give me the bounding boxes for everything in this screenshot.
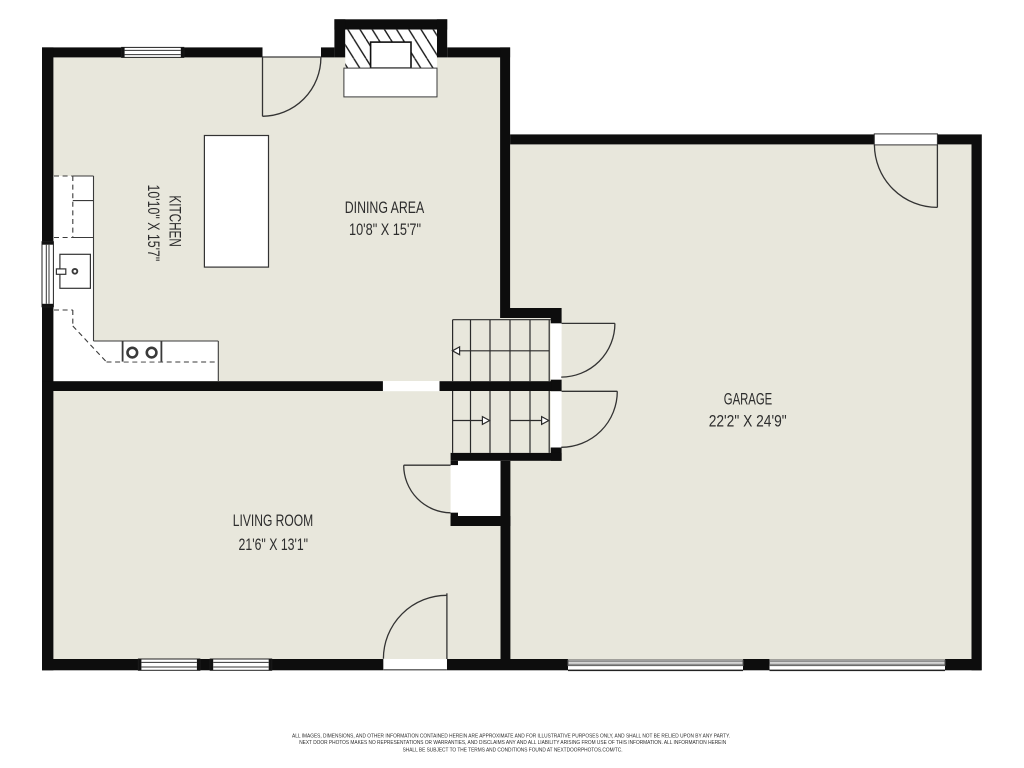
svg-text:10'8" X 15'7": 10'8" X 15'7" <box>349 220 421 239</box>
svg-text:KITCHEN: KITCHEN <box>165 195 184 246</box>
svg-text:22'2" X 24'9": 22'2" X 24'9" <box>709 411 787 430</box>
svg-text:SHALL BE SUBJECT TO THE TERMS: SHALL BE SUBJECT TO THE TERMS AND CONDIT… <box>403 747 623 753</box>
svg-text:DINING AREA: DINING AREA <box>345 198 425 217</box>
svg-text:10'10" X 15'7": 10'10" X 15'7" <box>144 185 163 262</box>
svg-text:NEXT DOOR PHOTOS MAKES NO REPR: NEXT DOOR PHOTOS MAKES NO REPRESENTATION… <box>299 740 726 746</box>
svg-text:LIVING ROOM: LIVING ROOM <box>233 511 314 530</box>
svg-text:21'6" X 13'1": 21'6" X 13'1" <box>239 535 309 554</box>
svg-text:GARAGE: GARAGE <box>724 390 773 409</box>
svg-text:ALL IMAGES, DIMENSIONS, AND OT: ALL IMAGES, DIMENSIONS, AND OTHER INFORM… <box>292 733 730 739</box>
